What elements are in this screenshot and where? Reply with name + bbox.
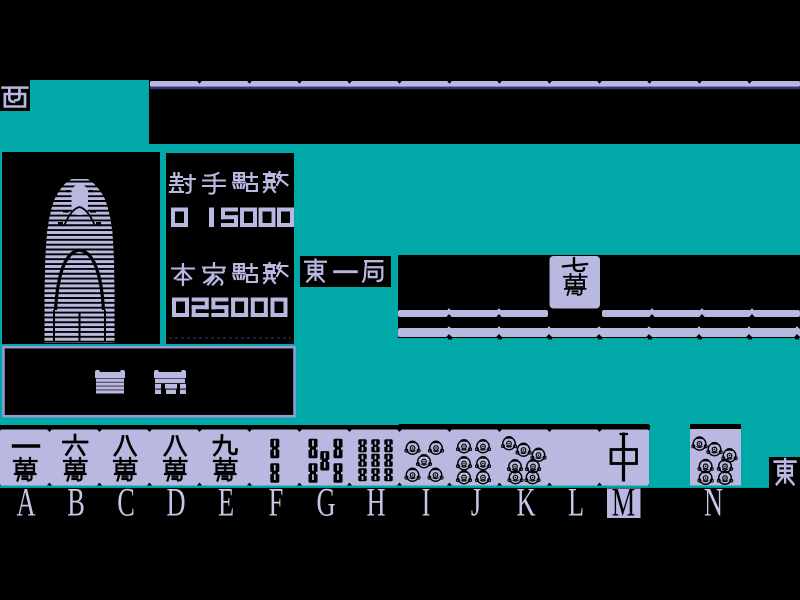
svg-text:N: N: [704, 481, 723, 525]
svg-text:J: J: [471, 481, 481, 525]
svg-text:K: K: [516, 481, 535, 525]
svg-text:C: C: [117, 481, 135, 525]
svg-text:I: I: [422, 481, 431, 525]
svg-text:G: G: [316, 481, 335, 525]
svg-text:B: B: [67, 481, 85, 525]
svg-text:D: D: [166, 481, 185, 525]
svg-text:H: H: [366, 481, 385, 525]
svg-text:A: A: [16, 481, 35, 525]
svg-text:L: L: [568, 481, 584, 525]
svg-text:F: F: [269, 481, 284, 525]
svg-text:E: E: [218, 481, 234, 525]
svg-text:M: M: [612, 481, 635, 525]
